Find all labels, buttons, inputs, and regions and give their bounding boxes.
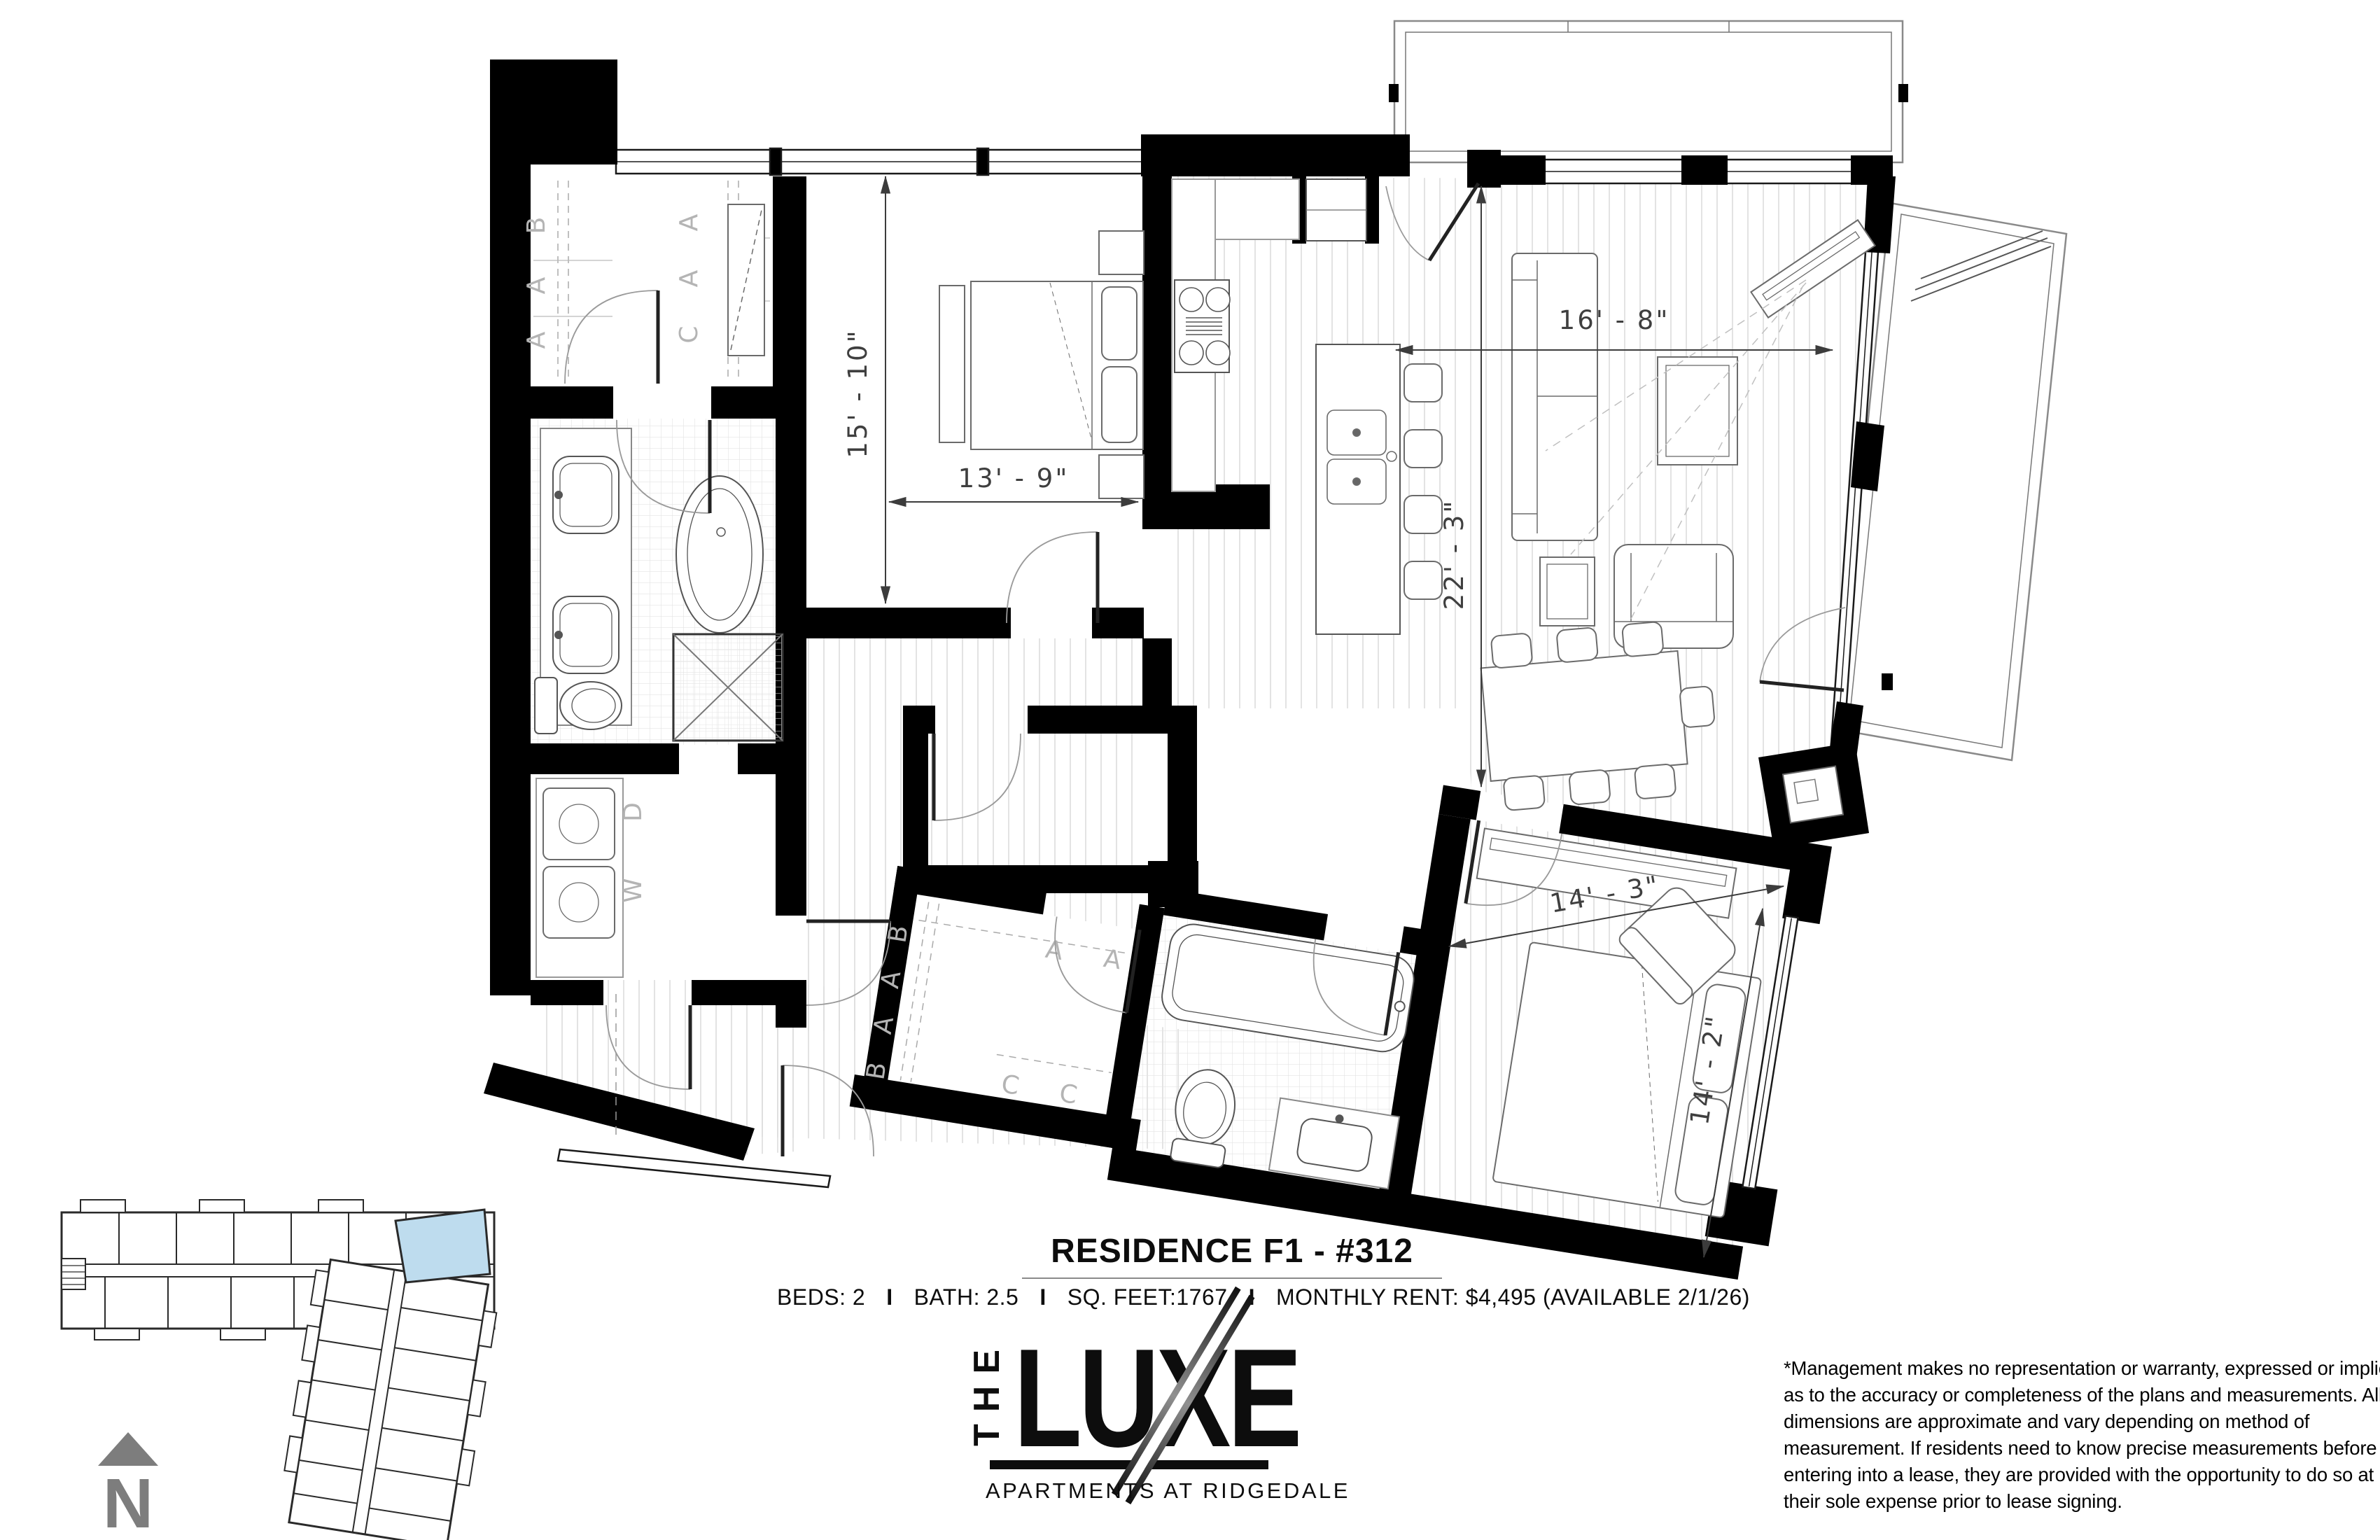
logo-tagline: APARTMENTS AT RIDGEDALE: [986, 1478, 1273, 1504]
disclaimer-line: *Management makes no representation or w…: [1784, 1355, 2380, 1382]
north-arrow-icon: N: [98, 1432, 158, 1540]
dim-living-v: 22' - 3": [1439, 499, 1469, 610]
closet1-label: C: [675, 325, 703, 343]
disclaimer-line: as to the accuracy or completeness of th…: [1784, 1382, 2380, 1408]
closet1-label: B: [522, 217, 551, 234]
dryer-label: D: [619, 802, 647, 822]
washer-label: W: [619, 878, 647, 903]
dim-living-h: 16' - 8": [1559, 305, 1670, 335]
dim-bedroom1-h: 13' - 9": [958, 463, 1070, 493]
balcony-top: [1389, 21, 1908, 162]
page-title: RESIDENCE F1 - #312: [777, 1232, 1687, 1270]
title-divider: [1022, 1277, 1442, 1279]
bench: [939, 286, 965, 442]
spec-separator: I: [886, 1284, 892, 1310]
spec-rent: MONTHLY RENT: $4,495 (AVAILABLE 2/1/26): [1276, 1284, 1750, 1310]
bar-stool: [1404, 430, 1442, 468]
north-label: N: [103, 1464, 153, 1540]
floor-plan-sheet: B A A B A A C C: [0, 0, 2380, 1540]
spec-sqft: SQ. FEET:1767: [1067, 1284, 1228, 1310]
bar-stool: [1404, 561, 1442, 599]
disclaimer: *Management makes no representation or w…: [1784, 1355, 2380, 1515]
logo-the: THE: [966, 1338, 1008, 1446]
disclaimer-line: entering into a lease, they are provided…: [1784, 1462, 2380, 1488]
closet1-label: A: [675, 213, 703, 231]
spec-separator: I: [1039, 1284, 1046, 1310]
closet1-label: A: [675, 269, 703, 287]
spec-beds: BEDS: 2: [777, 1284, 865, 1310]
nook-desk: [1783, 766, 1843, 822]
sofa: [1512, 253, 1597, 540]
dining-table: [1481, 651, 1688, 781]
bar-stool: [1404, 496, 1442, 533]
disclaimer-line: measurement. If residents need to know p…: [1784, 1435, 2380, 1462]
toilet-tank: [535, 678, 557, 734]
disclaimer-line: dimensions are approximate and vary depe…: [1784, 1408, 2380, 1435]
closet1-labels: B A A A A C: [522, 213, 703, 349]
spec-bath: BATH: 2.5: [914, 1284, 1019, 1310]
dim-bedroom1-v: 15' - 10": [843, 328, 873, 458]
bar-stool: [1404, 364, 1442, 402]
nightstand: [1099, 231, 1144, 274]
closet1-label: A: [522, 276, 551, 294]
nightstand: [1099, 455, 1144, 498]
disclaimer-line: their sole expense prior to lease signin…: [1784, 1488, 2380, 1515]
highlighted-unit: [395, 1210, 490, 1282]
closet1-label: A: [522, 331, 551, 349]
